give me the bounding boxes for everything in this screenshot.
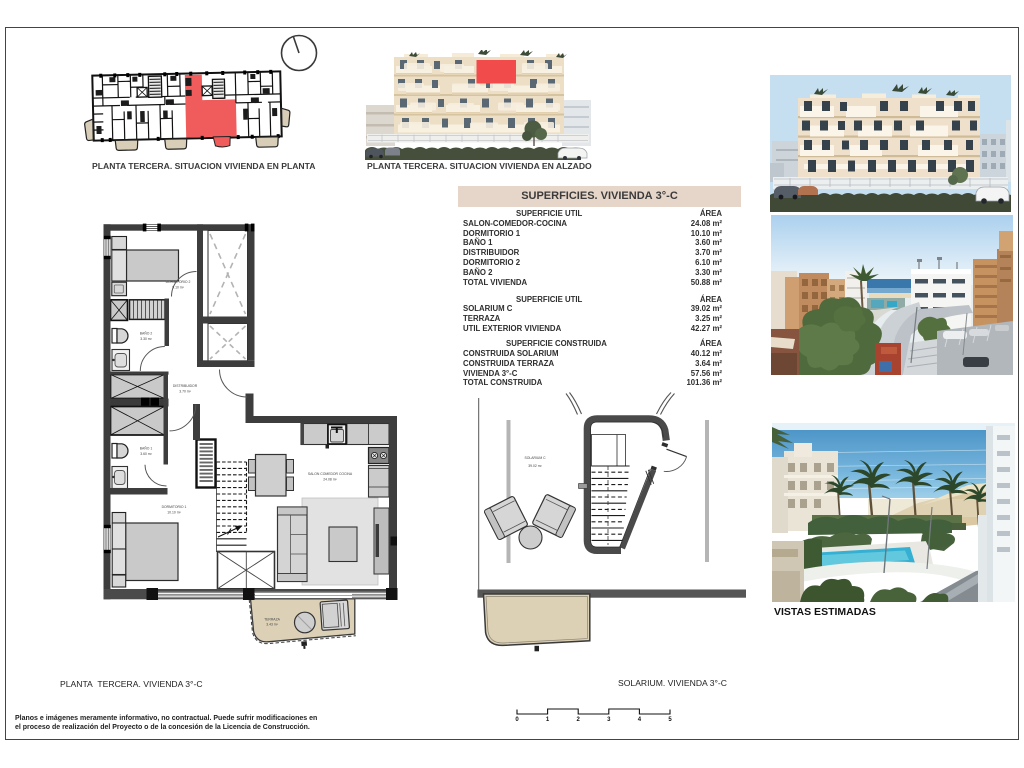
svg-text:2: 2 [577,717,581,723]
svg-text:DORMITORIO 1: DORMITORIO 1 [162,505,187,509]
svg-text:3: 3 [607,717,611,723]
svg-text:3.30 m²: 3.30 m² [140,337,152,341]
svg-text:3.43 m²: 3.43 m² [266,623,278,627]
svg-text:5: 5 [668,717,672,723]
svg-text:0: 0 [515,717,519,723]
svg-text:24.08 m²: 24.08 m² [323,478,337,482]
svg-text:3.70 m²: 3.70 m² [179,389,191,393]
svg-text:9.10 m²: 9.10 m² [172,285,184,289]
svg-text:SOLARIUM C: SOLARIUM C [524,456,546,460]
svg-text:3.60 m²: 3.60 m² [140,452,152,456]
svg-text:DORMITORIO 2: DORMITORIO 2 [166,280,191,284]
svg-text:SALON COMEDOR COCINA: SALON COMEDOR COCINA [308,472,353,476]
svg-text:BAÑO 1: BAÑO 1 [140,446,153,451]
svg-text:TERRAZA: TERRAZA [264,618,281,622]
svg-text:4: 4 [638,717,642,723]
svg-text:BAÑO 2: BAÑO 2 [140,331,153,336]
svg-text:1: 1 [546,717,550,723]
svg-text:DISTRIBUIDOR: DISTRIBUIDOR [173,384,198,388]
svg-text:10.10 m²: 10.10 m² [167,510,181,514]
svg-text:39.02 m²: 39.02 m² [528,464,542,468]
